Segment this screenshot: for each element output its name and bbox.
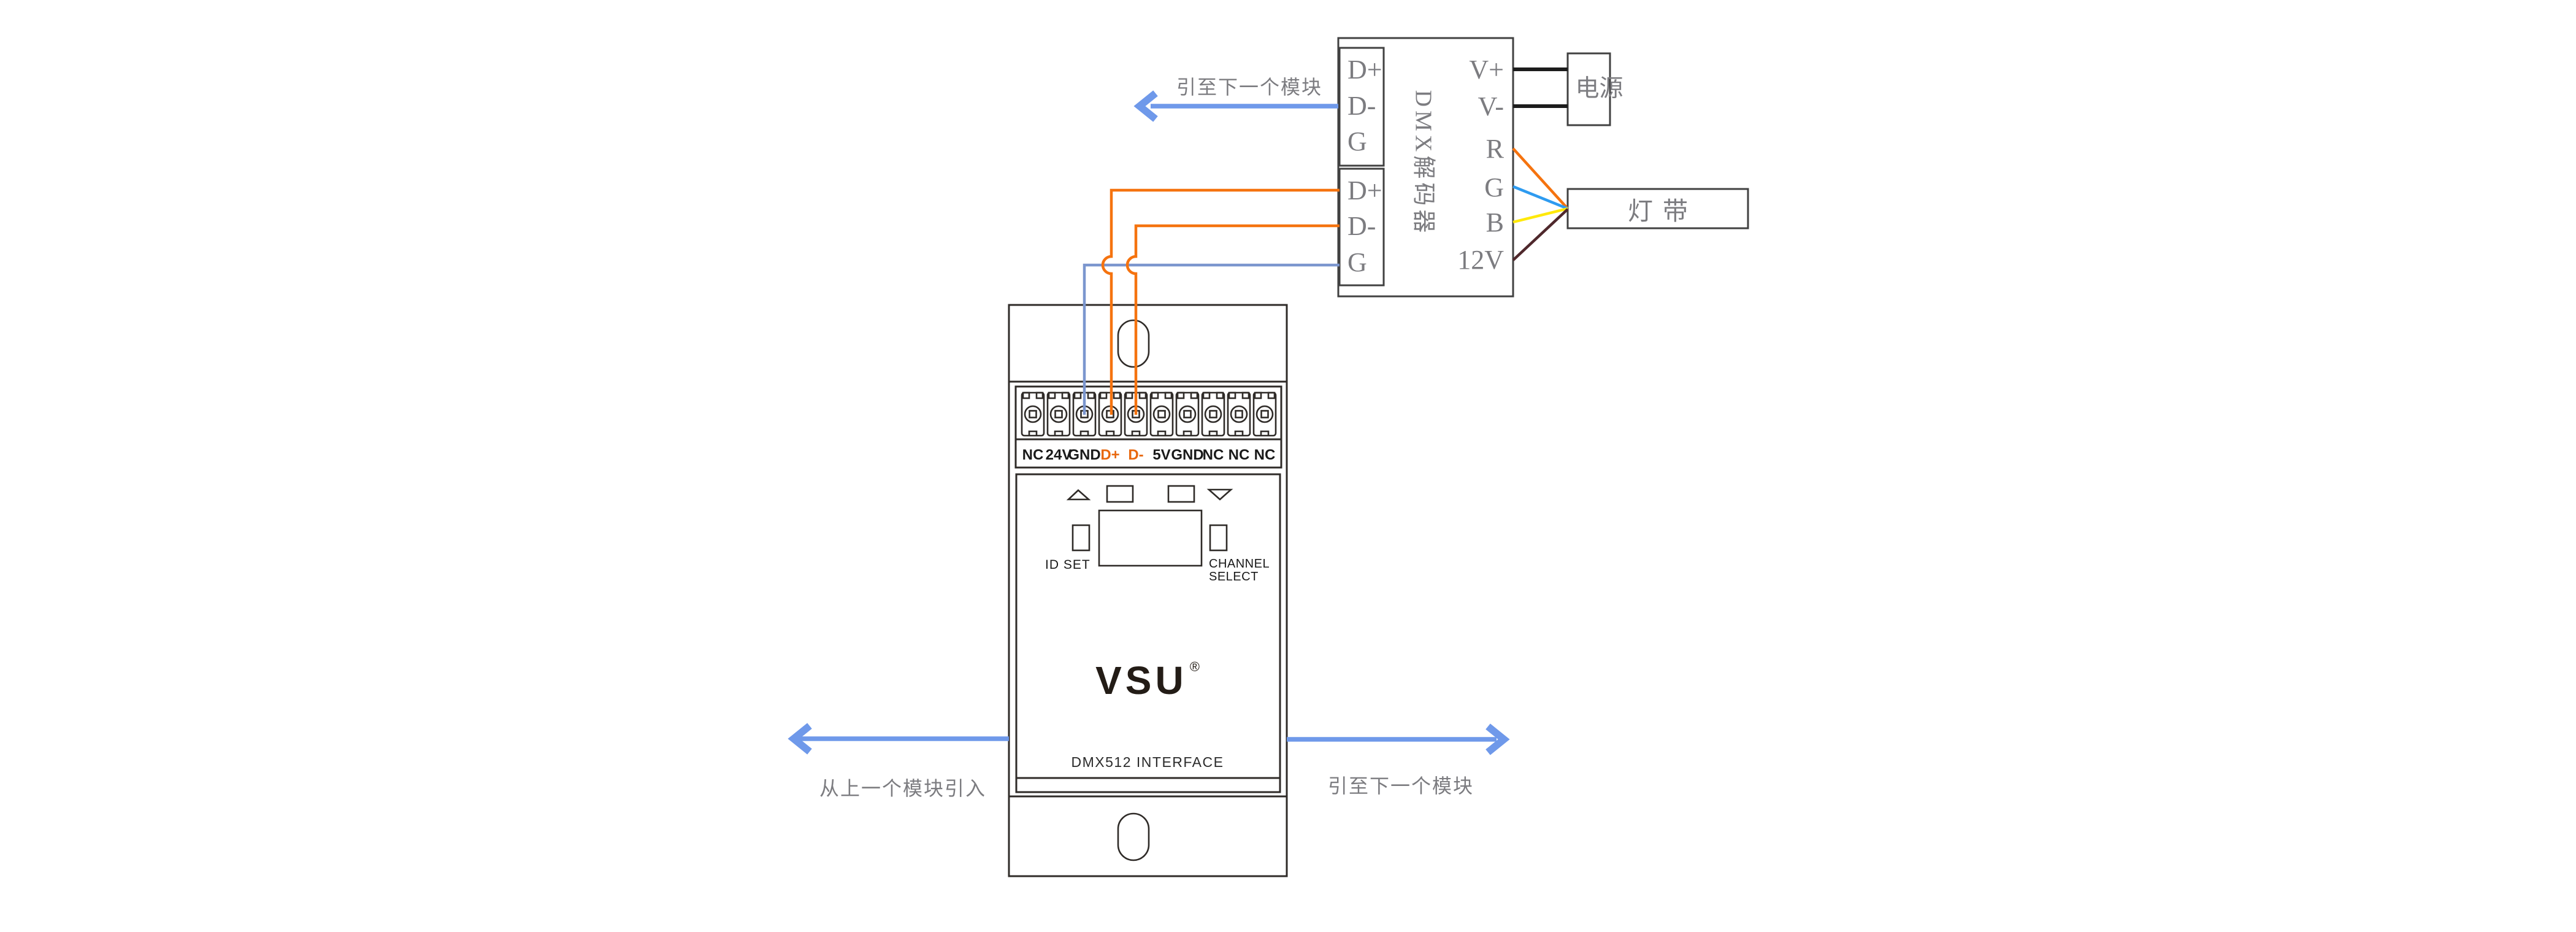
- wiring-diagram-canvas: NC24VGNDD+D-5VGNDNCNCNC: [0, 0, 2576, 932]
- wiring-diagram: NC24VGNDD+D-5VGNDNCNCNC: [0, 0, 2576, 932]
- daisy-chain-arrow-bottom-left: [794, 726, 1009, 752]
- channel-select-label: CHANNEL SELECT: [1209, 558, 1270, 583]
- terminal-label: NC: [1203, 447, 1224, 463]
- decoder-pin-label: D-: [1347, 211, 1376, 241]
- decoder-pin-label: 12V: [1457, 245, 1504, 275]
- channel-select-line2: SELECT: [1209, 571, 1270, 583]
- to-next-module-top-label: 引至下一个模块: [1176, 72, 1322, 100]
- module-front-panel-foot: [1016, 778, 1280, 792]
- power-supply-label: 电源: [1568, 53, 1610, 125]
- power-supply-label-text: 电源: [1576, 74, 1603, 104]
- decoder-title: DMX解码器: [1409, 90, 1443, 237]
- decoder-pin-label: D+: [1347, 55, 1382, 85]
- module-front-panel: [1016, 474, 1280, 778]
- to-next-module-bottom-label: 引至下一个模块: [1328, 771, 1474, 799]
- terminal-label: NC: [1229, 447, 1250, 463]
- registered-mark: ®: [1190, 659, 1200, 675]
- terminal-label: NC: [1022, 447, 1044, 463]
- decoder-pin-label: V+: [1469, 55, 1504, 85]
- brand-logo: VSU ®: [1095, 658, 1200, 703]
- decoder-pin-label: G: [1484, 172, 1504, 202]
- decoder-pin-label: D+: [1347, 175, 1382, 206]
- decoder-pin-label: V-: [1478, 91, 1504, 121]
- terminal-label: GND: [1068, 447, 1100, 463]
- terminal-label: D+: [1100, 447, 1119, 463]
- wire-r: [1513, 148, 1568, 209]
- terminal-label: D-: [1128, 447, 1143, 463]
- daisy-chain-arrow-bottom-right: [1287, 726, 1504, 752]
- decoder-pin-label: R: [1486, 134, 1505, 164]
- from-previous-module-label: 从上一个模块引入: [819, 773, 986, 801]
- terminal-label: 5V: [1152, 447, 1170, 463]
- product-label: DMX512 INTERFACE: [1071, 754, 1224, 771]
- decoder-pin-label: B: [1486, 207, 1504, 237]
- channel-select-line1: CHANNEL: [1209, 558, 1270, 571]
- terminal-label: NC: [1254, 447, 1276, 463]
- wire-12v: [1513, 209, 1568, 260]
- led-strip-label: 灯带: [1568, 189, 1748, 228]
- decoder-pin-label: G: [1347, 126, 1367, 156]
- decoder-pin-label: D-: [1347, 91, 1376, 121]
- brand-text: VSU: [1095, 658, 1187, 703]
- terminal-label: GND: [1171, 447, 1203, 463]
- id-set-label: ID SET: [1045, 558, 1091, 572]
- decoder-pin-label: G: [1347, 247, 1367, 277]
